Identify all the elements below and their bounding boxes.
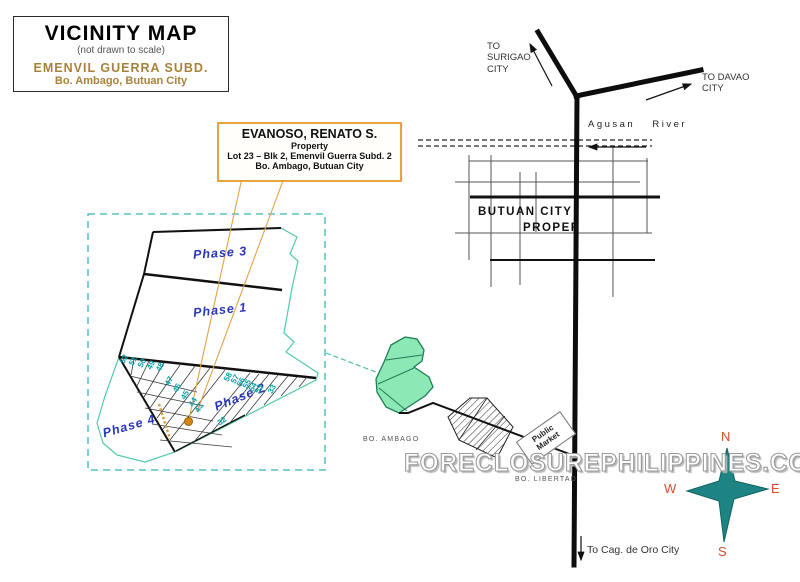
butuan-proper-label: PROPER [523, 222, 581, 234]
subdivision-locality-shape [376, 337, 433, 413]
compass-north-label: N [721, 429, 730, 444]
bo-ambago-label: BO. AMBAGO [363, 436, 419, 443]
compass-west-label: W [664, 481, 676, 496]
agusan-river-label: Agusan River [588, 119, 687, 130]
inset-connector-line [326, 353, 381, 374]
to-surigao-line1: TO [487, 41, 531, 52]
to-surigao-line2: SURIGAO [487, 52, 531, 63]
compass-east-label: E [771, 481, 780, 496]
to-davao-line2: CITY [702, 83, 750, 94]
butuan-city-label: BUTUAN CITY [478, 206, 572, 218]
page-title: VICINITY MAP [14, 22, 228, 46]
property-location: Bo. Ambago, Butuan City [219, 161, 400, 171]
vicinity-map-page: VICINITY MAP (not drawn to scale) EMENVI… [0, 0, 800, 582]
highway-roads [538, 32, 701, 565]
to-davao-line1: TO DAVAO [702, 72, 750, 83]
agusan-river-lines [418, 140, 652, 146]
bo-libertad-label: BO. LIBERTAD [515, 476, 577, 483]
property-lot: Lot 23 – Blk 2, Emenvil Guerra Subd. 2 [219, 151, 400, 161]
compass-south-label: S [718, 544, 727, 559]
subdivision-location: Bo. Ambago, Butuan City [14, 75, 228, 87]
property-location-dot [185, 418, 193, 426]
property-owner: EVANOSO, RENATO S. [219, 127, 400, 141]
to-surigao-label: TO SURIGAO CITY [487, 41, 531, 75]
to-cagayan-label: To Cag. de Oro City [587, 544, 679, 556]
property-label: Property [219, 141, 400, 151]
subdivision-name: EMENVIL GUERRA SUBD. [14, 61, 228, 75]
property-callout-box: EVANOSO, RENATO S. Property Lot 23 – Blk… [217, 122, 402, 182]
to-davao-label: TO DAVAO CITY [702, 72, 750, 95]
title-box: VICINITY MAP (not drawn to scale) EMENVI… [13, 16, 229, 92]
to-surigao-line3: CITY [487, 64, 531, 75]
title-note: (not drawn to scale) [14, 45, 228, 56]
watermark-text: FORECLOSUREPHILIPPINES.COM [404, 449, 800, 478]
